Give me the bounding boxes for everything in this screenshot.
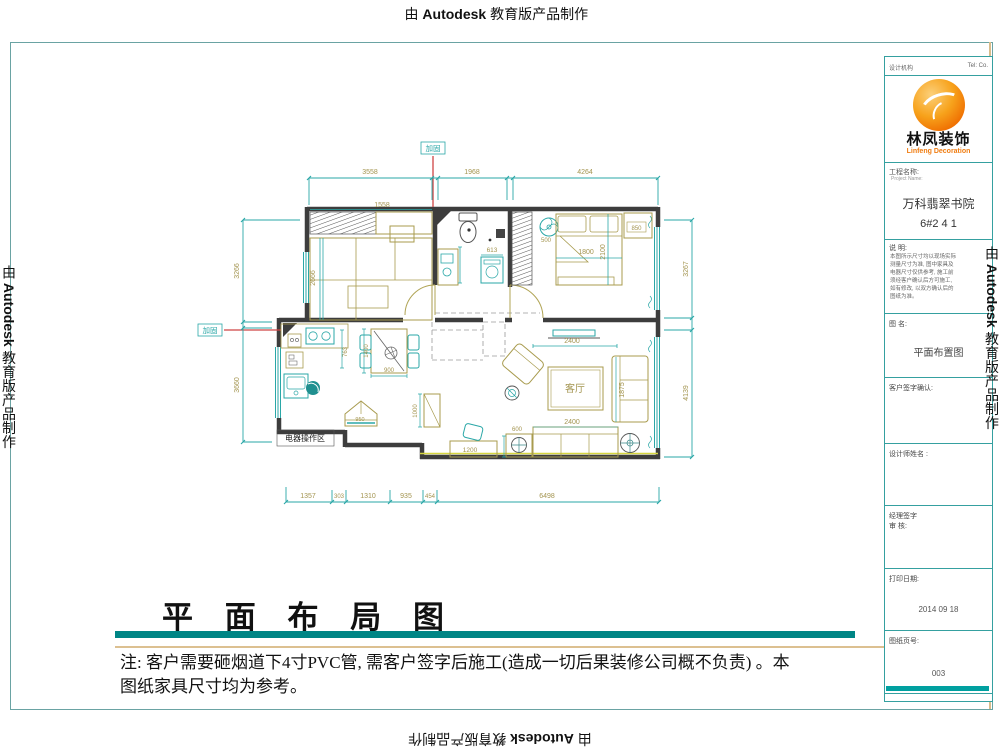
room-label-living: 客厅 [565,382,585,395]
dim-bed-width: 1800 [578,249,594,256]
dim-bottom-4: 935 [400,493,412,500]
kitchen-furniture: 763 1400 900 950 1000 电器操作区 [277,324,440,446]
reinforce-label-top: 加固 [426,143,441,153]
dim-bottom-6: 6498 [539,493,555,500]
tel-label: Tel: Co. [968,63,988,69]
designer-section: 设计师姓名 : [885,444,992,506]
stamp-suffix: 教育版产品制作 [1,351,17,449]
dim-nightstand: 850 [631,226,642,232]
room1-furniture: 1558 2666 [310,202,432,320]
dim-bottom-3: 1310 [360,493,376,500]
stamp-brand: Autodesk [510,731,574,747]
dim-dining-width: 900 [384,368,395,374]
bathroom-fixtures: 613 [438,213,505,285]
title-block: 设计机构 Tel: Co. 林凤装饰 Linfeng Decoration 工程… [884,56,993,702]
dim-bottom-1: 1357 [300,493,316,500]
drawing-name: 平面布置图 [885,344,992,359]
client-sign-section: 客户签字确认: [885,378,992,444]
notes-text: 本图所示尺寸均以现场实际 测量尺寸为准, 图中家具及 电器尺寸仅供参考, 施工前… [890,253,985,301]
dim-right-2: 4139 [683,385,690,401]
stamp-prefix: 由 [984,246,1000,260]
project-unit: 6#2 4 1 [885,218,992,230]
project-name: 万科翡翠书院 [885,195,992,212]
print-date-section: 打印日期: 2014 09 18 [885,569,992,631]
footer-note: 注: 客户需要砸烟道下4寸PVC管, 需客户签字后施工(造成一切后果装修公司概不… [120,651,870,699]
title-block-accent-bar [886,686,989,691]
dim-tv: 2400 [564,338,580,345]
reinforce-label-left: 加固 [203,325,218,335]
dim-side-table: 600 [512,427,523,433]
print-date-value: 2014 09 18 [885,605,992,614]
dim-bottom-2: 303 [334,494,345,500]
page-number-label: 图纸页号: [889,636,919,646]
page-number-value: 003 [885,669,992,678]
agency-label: 设计机构 [889,63,913,72]
dim-desk: 1200 [463,447,478,454]
dim-left-2: 3660 [234,377,241,393]
dim-bath: 613 [487,247,498,254]
manager-section: 经理签字 审 核: [885,506,992,569]
footer-note-line1: 注: 客户需要砸烟道下4寸PVC管, 需客户签字后施工(造成一切后果装修公司概不… [120,651,870,675]
company-logo: 林凤装饰 Linfeng Decoration [885,76,992,163]
client-sign-label: 客户签字确认: [889,383,933,393]
dim-fan: 500 [541,238,552,244]
review-label: 审 核: [889,521,907,531]
livingroom-furniture: 2400 客厅 1875 2400 [450,330,648,457]
notes-section: 说 明: 本图所示尺寸均以现场实际 测量尺寸为准, 图中家具及 电器尺寸仅供参考… [885,240,992,314]
stamp-brand: Autodesk [984,264,1000,328]
stamp-suffix: 教育版产品制作 [408,731,506,747]
project-section: 工程名称: Project Name: 万科翡翠书院 6#2 4 1 [885,163,992,240]
manager-label: 经理签字 [889,511,917,521]
logo-name-cn: 林凤装饰 [885,131,992,148]
dim-sofa: 2400 [564,419,580,426]
drawing-name-section: 图 名: 平面布置图 [885,314,992,378]
dim-top-3: 4264 [577,169,593,176]
doors [405,285,543,318]
footer-note-line2: 图纸家具尺寸均为参考。 [120,675,870,699]
stamp-prefix: 由 [578,731,592,747]
dim-top-2: 1968 [464,169,480,176]
print-date-label: 打印日期: [889,574,919,584]
dim-bed-length: 2100 [600,244,607,260]
dim-island: 950 [355,417,364,423]
stamp-suffix: 教育版产品制作 [984,332,1000,430]
logo-phoenix-icon [913,79,965,131]
page-number-section: 图纸页号: 003 [885,631,992,694]
designer-label: 设计师姓名 : [889,449,928,459]
notes-label: 说 明: [889,243,907,253]
edu-stamp-bottom: 由 Autodesk 教育版产品制作 [408,729,592,749]
dim-top-1: 3558 [362,169,378,176]
bedroom-furniture: 500 1800 2100 850 [512,212,652,285]
stamp-prefix: 由 [405,6,419,22]
stamp-brand: Autodesk [422,6,486,22]
dim-dining-length: 1400 [364,344,370,358]
dim-wardrobe: 1558 [374,202,390,209]
stamp-prefix: 由 [1,265,17,279]
dim-sofa-side: 1875 [619,382,626,398]
zone-label: 电器操作区 [285,433,325,443]
title-block-header: 设计机构 Tel: Co. [885,57,992,76]
dim-right-1: 3267 [683,261,690,277]
drawing-sheet: 加固 加固 1558 2666 [0,0,1000,750]
drawing-name-label: 图 名: [889,319,907,329]
footer-divider-line [115,646,990,648]
title-underline-bar [115,631,855,638]
stamp-brand: Autodesk [1,283,17,347]
dim-bottom-5: 454 [425,494,436,500]
dim-room1-width: 2666 [310,270,317,286]
dim-left-1: 3266 [234,263,241,279]
stamp-suffix: 教育版产品制作 [490,6,588,22]
dim-counter: 763 [343,346,349,357]
edu-stamp-left: 由 Autodesk 教育版产品制作 [0,265,19,449]
edu-stamp-top: 由 Autodesk 教育版产品制作 [405,4,589,24]
dim-cabinet: 1000 [413,404,419,418]
reinforcement-markers: 加固 加固 [198,142,445,336]
edu-stamp-right: 由 Autodesk 教育版产品制作 [982,246,1000,430]
project-sublabel: Project Name: [891,176,923,182]
logo-name-en: Linfeng Decoration [885,148,992,155]
